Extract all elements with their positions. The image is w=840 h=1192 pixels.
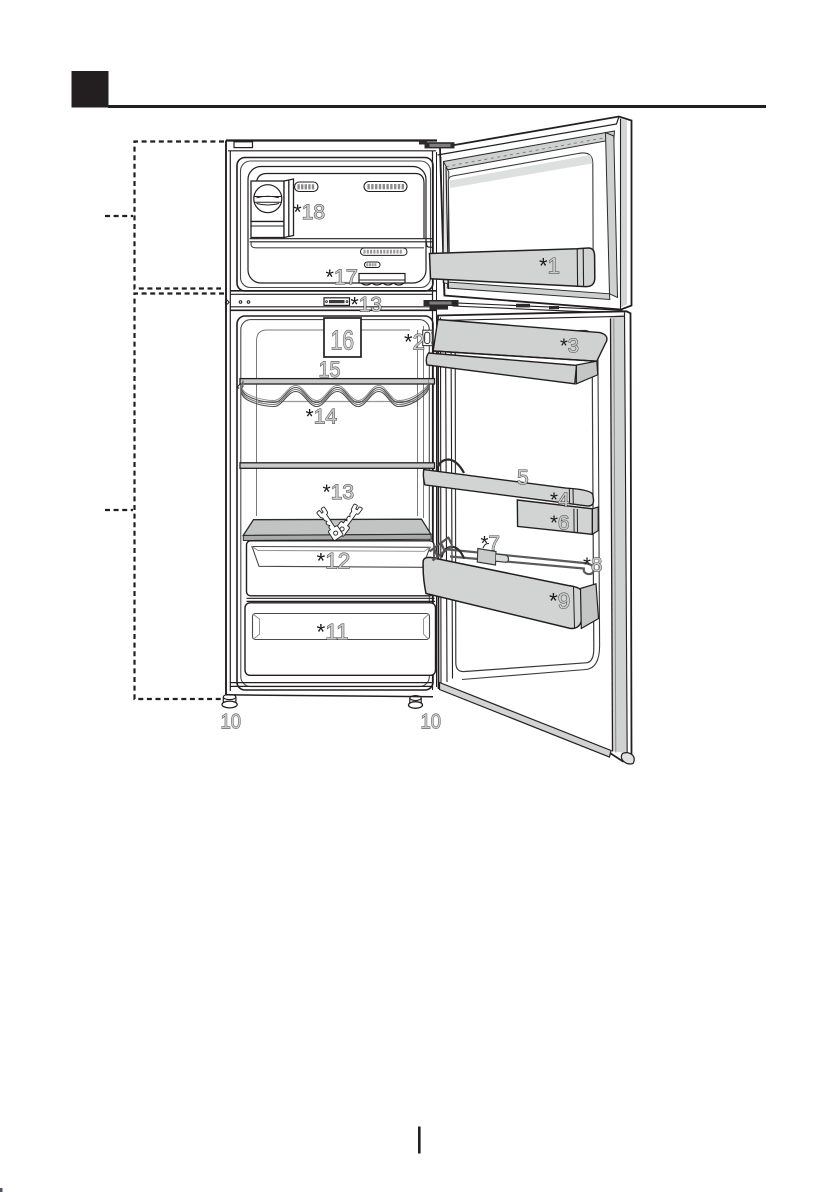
svg-text:16: 16 (331, 325, 355, 356)
svg-text:*7: *7 (481, 532, 500, 555)
svg-text:*11: *11 (317, 620, 349, 645)
svg-text:10: 10 (221, 710, 242, 734)
svg-text:*13: *13 (323, 481, 355, 504)
svg-text:15: 15 (319, 357, 341, 382)
svg-text:*8: *8 (583, 554, 602, 577)
svg-text:*14: *14 (306, 406, 338, 429)
svg-text:*4: *4 (550, 489, 569, 512)
svg-text:*12: *12 (317, 549, 351, 574)
svg-text:5: 5 (517, 467, 529, 490)
svg-text:*3: *3 (560, 336, 579, 358)
svg-text:*17: *17 (326, 265, 358, 289)
svg-text:*2: *2 (404, 330, 425, 355)
svg-text:*13: *13 (351, 294, 383, 317)
svg-text:*6: *6 (550, 512, 569, 535)
svg-text:*18: *18 (294, 201, 326, 224)
svg-text:*1: *1 (539, 254, 560, 279)
svg-text:10: 10 (421, 710, 442, 734)
svg-text:*9: *9 (549, 589, 570, 614)
